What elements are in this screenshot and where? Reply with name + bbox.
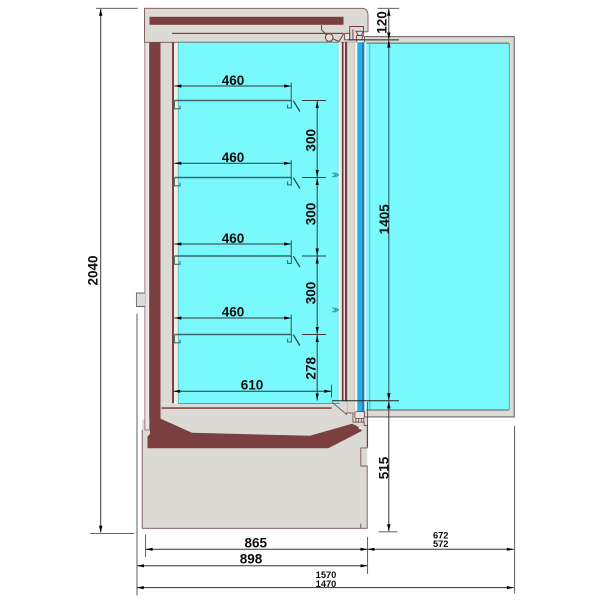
svg-text:610: 610: [241, 377, 264, 392]
svg-text:300: 300: [303, 129, 318, 152]
svg-text:278: 278: [304, 357, 319, 380]
svg-text:865: 865: [245, 535, 268, 550]
svg-text:460: 460: [222, 150, 245, 165]
svg-text:460: 460: [222, 231, 245, 246]
svg-text:300: 300: [303, 203, 318, 226]
svg-text:300: 300: [303, 282, 318, 305]
svg-text:460: 460: [222, 305, 245, 320]
svg-text:2040: 2040: [86, 255, 101, 285]
svg-text:120: 120: [374, 11, 389, 34]
svg-text:898: 898: [240, 551, 263, 566]
svg-text:515: 515: [376, 456, 391, 479]
svg-text:460: 460: [222, 73, 245, 88]
svg-text:1405: 1405: [377, 204, 392, 235]
svg-text:572: 572: [433, 539, 449, 549]
svg-text:1470: 1470: [316, 579, 337, 589]
